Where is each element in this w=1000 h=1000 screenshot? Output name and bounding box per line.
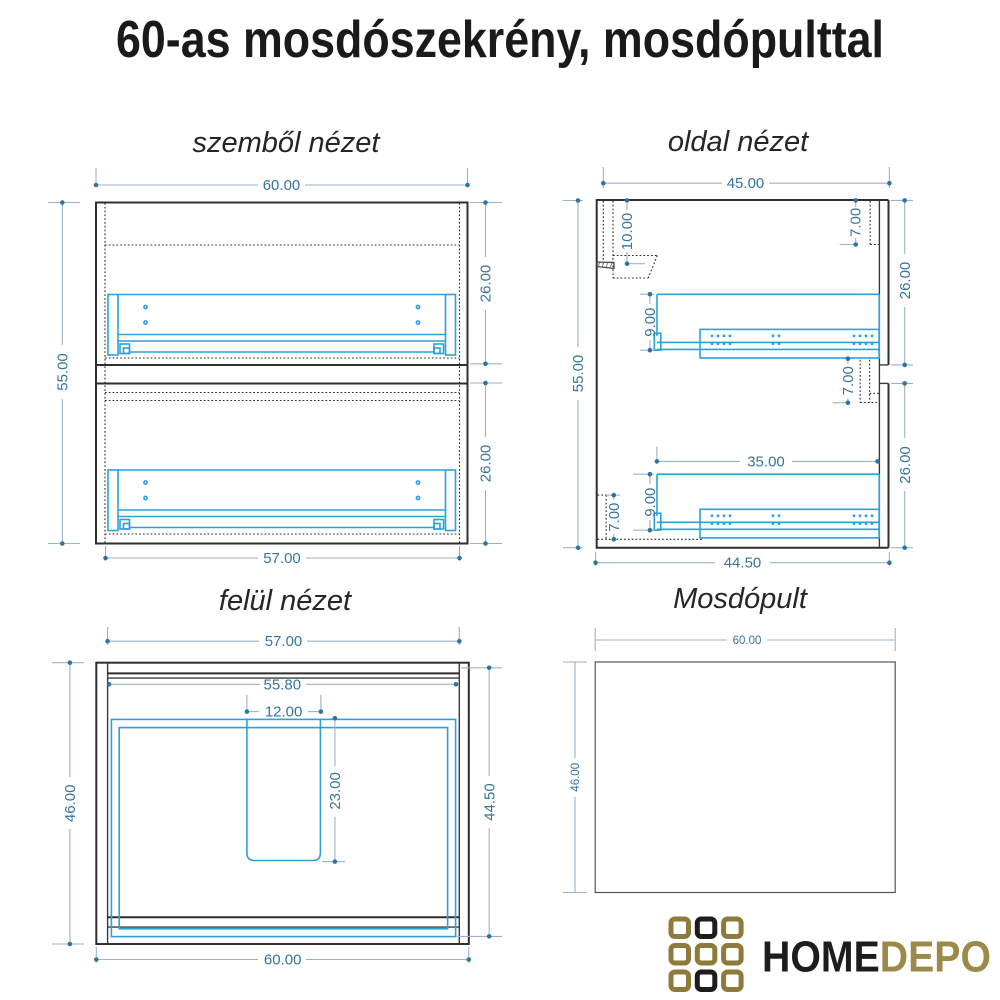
svg-text:7.00: 7.00 xyxy=(840,366,857,395)
svg-text:26.00: 26.00 xyxy=(897,262,914,300)
svg-text:44.50: 44.50 xyxy=(481,783,498,821)
svg-text:9.00: 9.00 xyxy=(642,488,659,517)
svg-text:9.00: 9.00 xyxy=(642,308,659,337)
svg-text:60-as mosdószekrény, mosdópult: 60-as mosdószekrény, mosdópulttal xyxy=(116,11,884,69)
svg-text:szemből nézet: szemből nézet xyxy=(193,127,382,159)
svg-text:23.00: 23.00 xyxy=(327,772,344,810)
svg-text:26.00: 26.00 xyxy=(897,446,914,484)
svg-text:57.00: 57.00 xyxy=(265,633,303,650)
svg-text:55.00: 55.00 xyxy=(570,355,587,393)
svg-text:26.00: 26.00 xyxy=(478,445,495,483)
svg-text:60.00: 60.00 xyxy=(263,177,301,194)
svg-text:46.00: 46.00 xyxy=(570,763,582,792)
svg-text:10.00: 10.00 xyxy=(619,213,636,251)
svg-text:45.00: 45.00 xyxy=(727,175,765,192)
svg-text:26.00: 26.00 xyxy=(478,265,495,303)
svg-text:44.50: 44.50 xyxy=(724,555,762,572)
svg-text:oldal nézet: oldal nézet xyxy=(668,126,810,158)
svg-text:7.00: 7.00 xyxy=(606,503,623,532)
svg-text:12.00: 12.00 xyxy=(265,704,303,721)
svg-text:felül nézet: felül nézet xyxy=(219,585,353,617)
svg-text:57.00: 57.00 xyxy=(263,550,301,567)
svg-text:35.00: 35.00 xyxy=(747,453,785,470)
svg-text:Mosdópult: Mosdópult xyxy=(673,583,809,615)
svg-text:HOMEDEPO: HOMEDEPO xyxy=(762,933,991,982)
svg-text:46.00: 46.00 xyxy=(62,785,79,823)
svg-text:60.00: 60.00 xyxy=(733,635,762,647)
svg-text:7.00: 7.00 xyxy=(848,208,865,237)
svg-text:60.00: 60.00 xyxy=(264,952,302,969)
svg-text:55.00: 55.00 xyxy=(55,353,72,391)
svg-text:55.80: 55.80 xyxy=(264,676,302,693)
